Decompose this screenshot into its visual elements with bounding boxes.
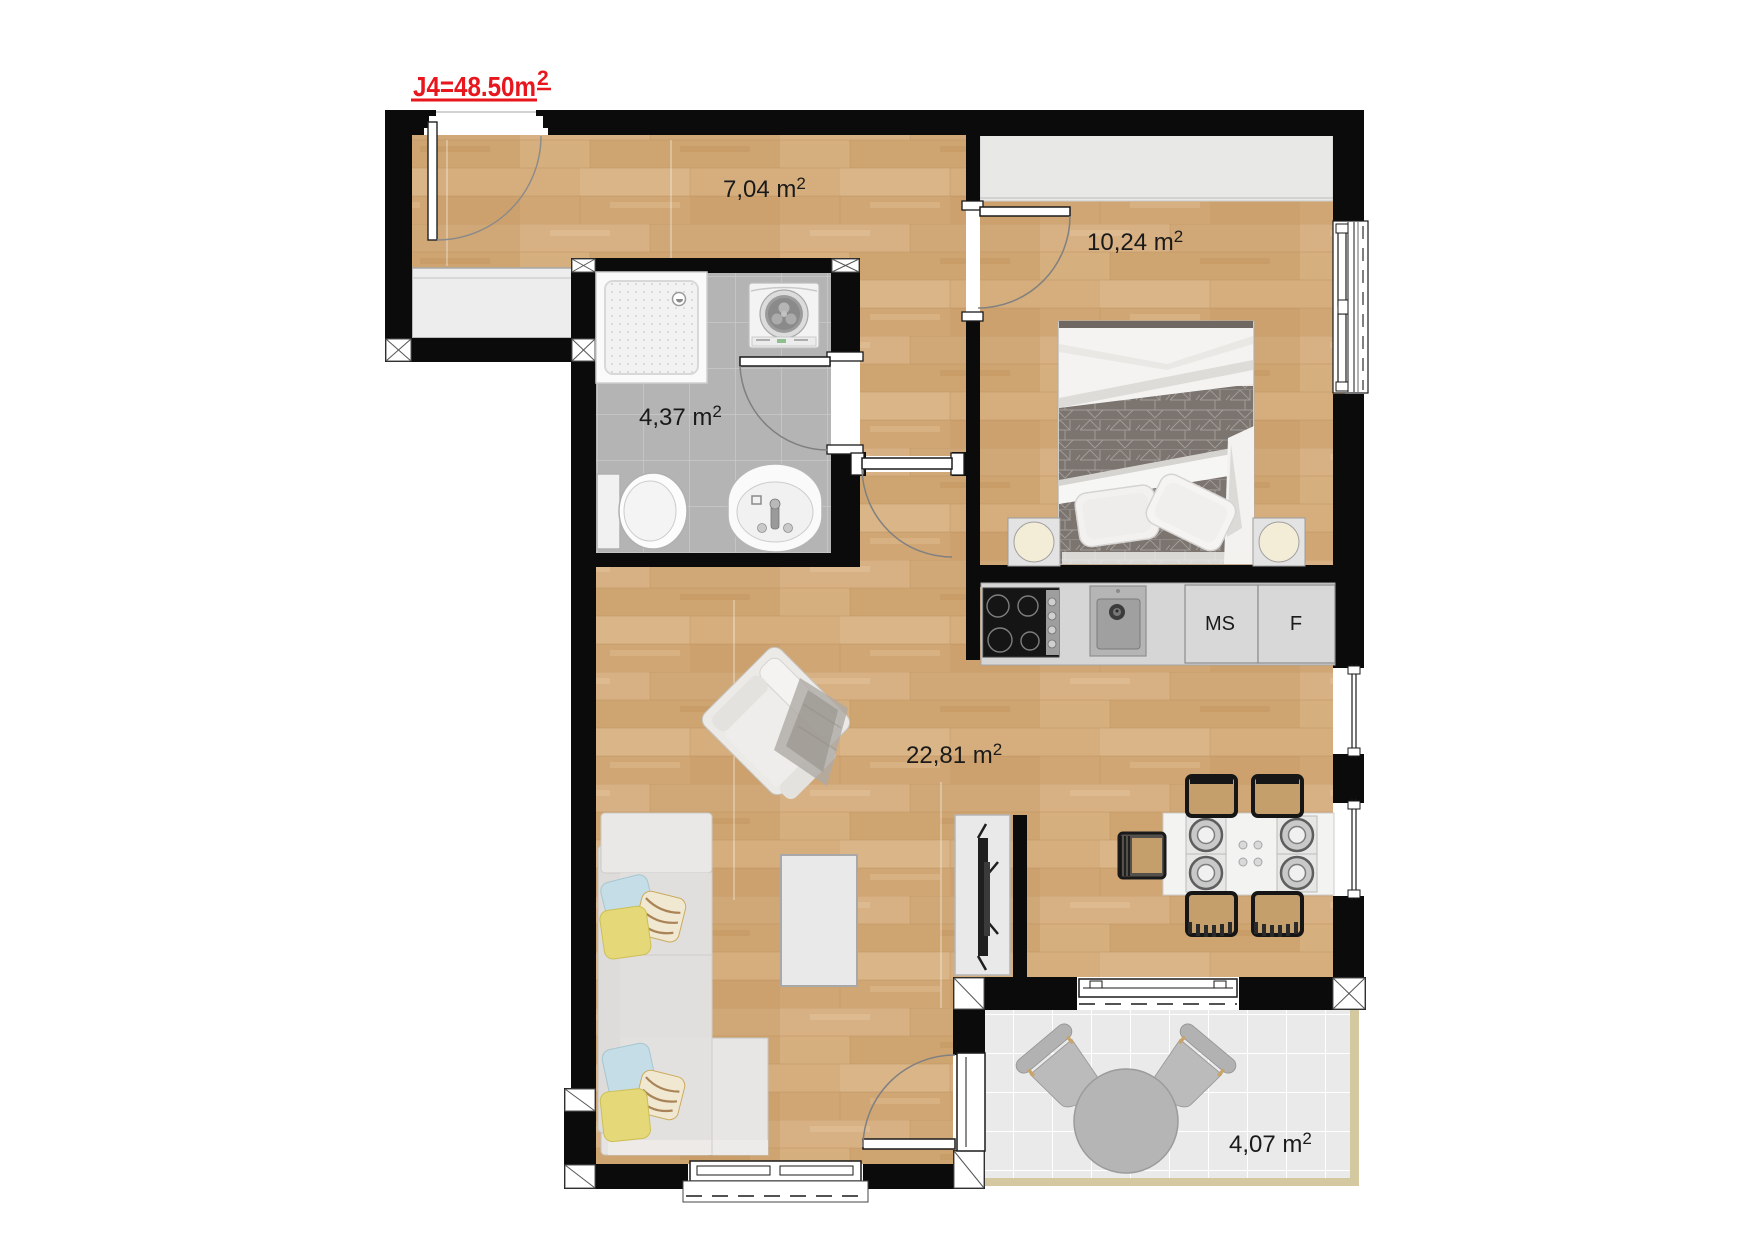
svg-text:7,04 m2: 7,04 m2 [723,174,806,203]
svg-text:J4=48.50m: J4=48.50m [413,71,536,102]
svg-text:4,07 m2: 4,07 m2 [1229,1129,1312,1158]
svg-text:22,81 m2: 22,81 m2 [906,740,1002,769]
svg-text:MS: MS [1205,613,1235,635]
svg-text:F: F [1290,613,1302,635]
svg-text:2: 2 [537,67,549,90]
svg-text:4,37 m2: 4,37 m2 [639,402,722,431]
svg-text:10,24 m2: 10,24 m2 [1087,227,1183,256]
